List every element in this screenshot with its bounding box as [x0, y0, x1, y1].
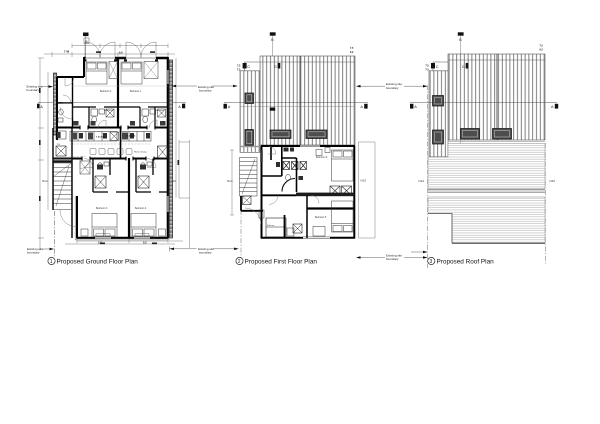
svg-text:Proposed Ground Floor Plan: Proposed Ground Floor Plan [57, 258, 139, 265]
svg-text:C: C [247, 64, 250, 69]
svg-text:5.2: 5.2 [143, 241, 147, 245]
svg-text:N14: N14 [419, 179, 425, 183]
svg-text:A: A [360, 105, 363, 109]
svg-text:G: G [274, 64, 277, 69]
svg-text:boundary: boundary [386, 86, 399, 90]
svg-text:Bedroom 5: Bedroom 5 [315, 216, 327, 219]
svg-text:9.9: 9.9 [119, 51, 123, 55]
svg-text:boundary: boundary [27, 88, 40, 92]
svg-text:N14: N14 [227, 179, 233, 183]
svg-text:T.B: T.B [57, 144, 61, 146]
svg-text:1: 1 [50, 259, 53, 265]
svg-text:boundary: boundary [27, 251, 40, 255]
svg-text:7.5t dish: 7.5t dish [96, 136, 106, 139]
svg-text:Kitchen: Kitchen [267, 224, 275, 227]
svg-text:boundary: boundary [199, 88, 212, 92]
svg-text:G: G [462, 64, 465, 69]
svg-text:B: B [85, 39, 88, 44]
svg-text:A: A [228, 105, 231, 109]
svg-text:Home dining: Home dining [134, 152, 147, 154]
svg-text:Bedroom 2: Bedroom 2 [100, 90, 112, 93]
svg-text:N14: N14 [42, 179, 48, 183]
svg-text:Bedroom 4: Bedroom 4 [135, 207, 147, 210]
svg-text:Bedroom 6: Bedroom 6 [316, 156, 328, 159]
svg-text:N10: N10 [550, 179, 556, 183]
svg-text:2: 2 [238, 259, 241, 265]
svg-text:N10: N10 [361, 179, 367, 183]
svg-text:A: A [414, 105, 417, 109]
svg-text:Bedroom 1: Bedroom 1 [130, 90, 142, 93]
svg-text:Bedroom 3: Bedroom 3 [96, 207, 108, 210]
svg-text:Proposed Roof Plan: Proposed Roof Plan [437, 258, 495, 265]
svg-text:3: 3 [430, 259, 433, 265]
svg-text:Proposed First Floor Plan: Proposed First Floor Plan [245, 258, 318, 265]
svg-text:boundary: boundary [199, 251, 212, 255]
svg-text:boundary: boundary [386, 257, 399, 261]
svg-text:C: C [436, 64, 439, 69]
svg-text:7.48: 7.48 [64, 50, 70, 54]
svg-text:11.5 dish: 11.5 dish [126, 136, 136, 138]
svg-text:Bathroom: Bathroom [104, 109, 113, 112]
svg-text:Bathroom: Bathroom [155, 109, 164, 112]
